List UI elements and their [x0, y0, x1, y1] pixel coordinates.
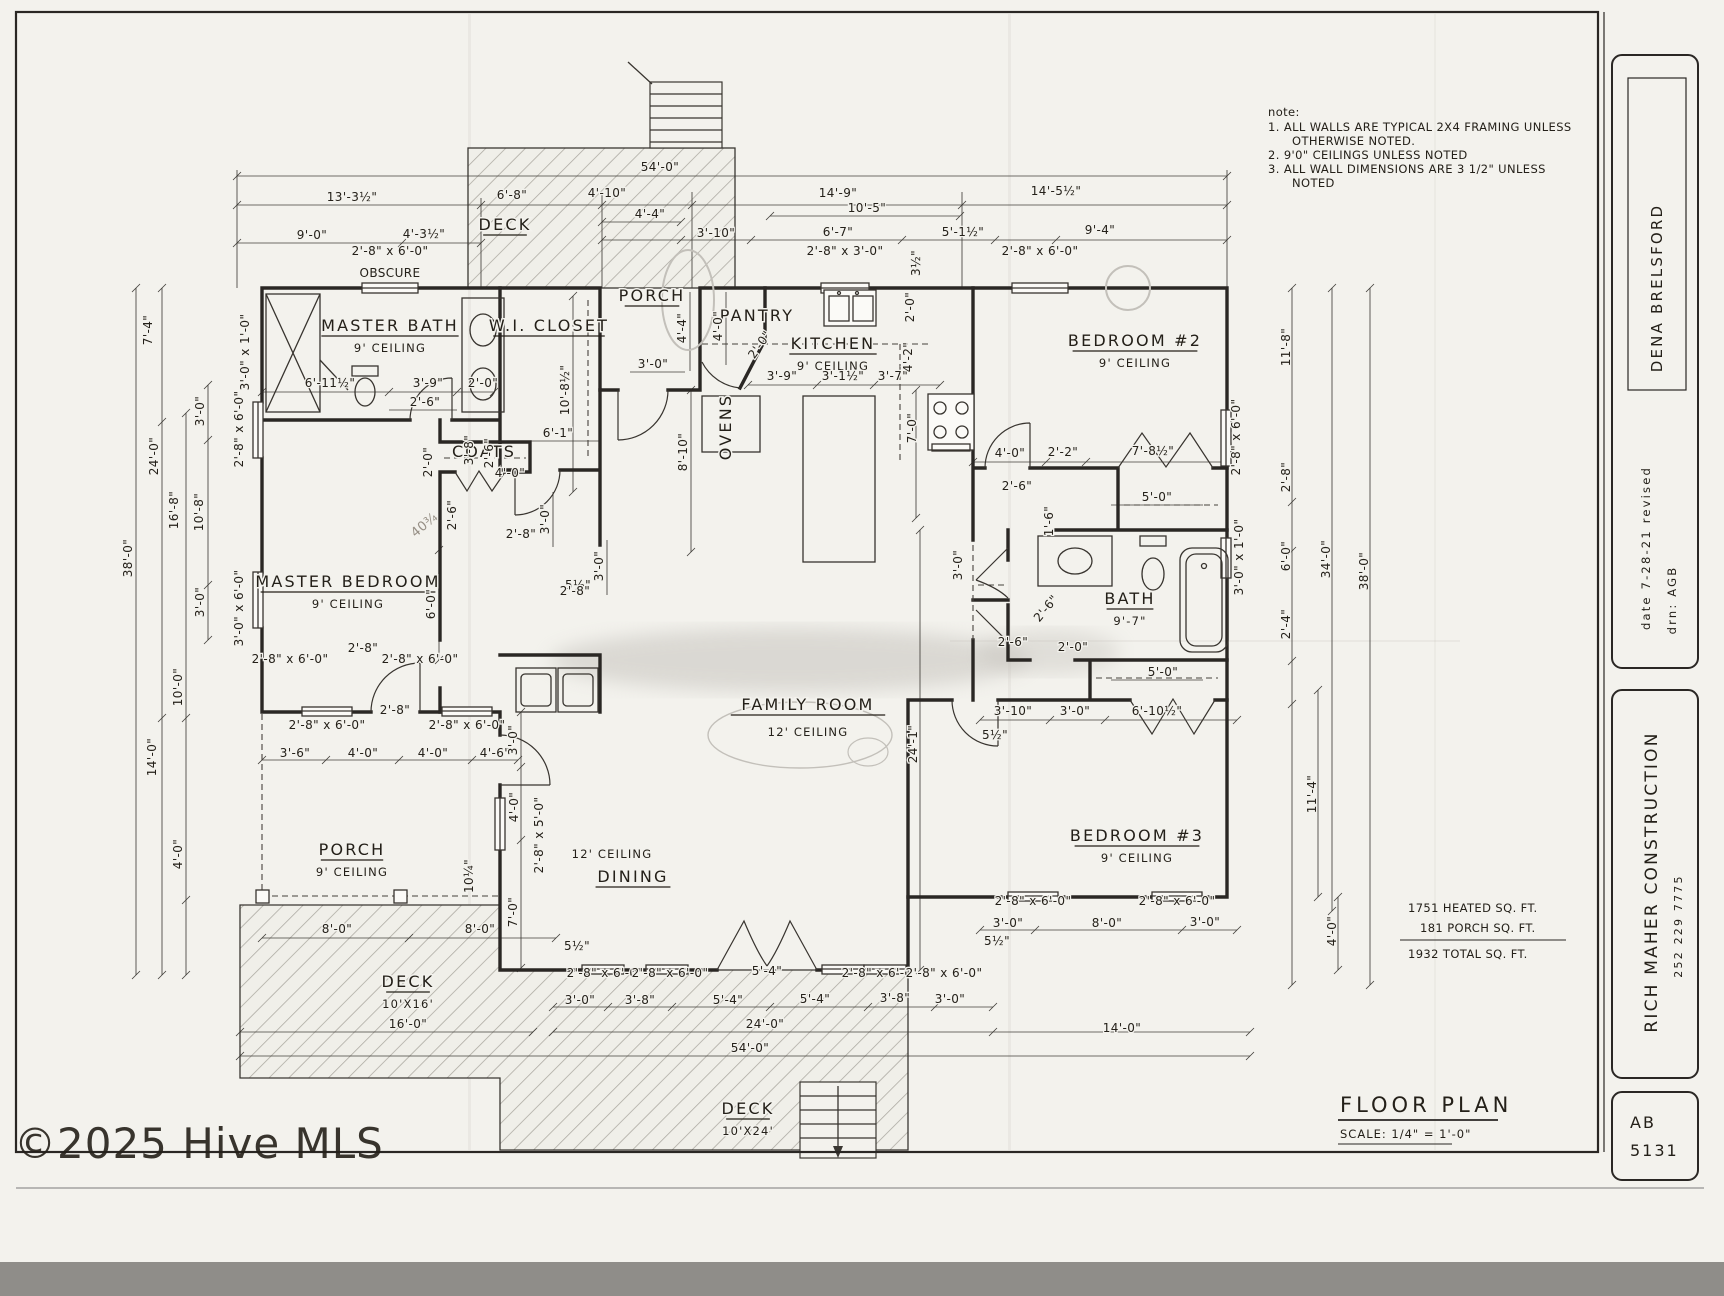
room-ceiling-note: 12' CEILING — [768, 725, 849, 739]
dimension-label: 4'-3½" — [403, 227, 445, 241]
dimension-label: 6'-0" — [424, 589, 438, 619]
scanned-floor-plan-sheet: DENA BRELSFORD date 7-28-21 revised drn:… — [0, 0, 1724, 1296]
dimension-label: 2'-8" x 6'-0" — [906, 966, 983, 980]
dimension-label: 2'-8" — [1279, 462, 1293, 492]
dimension-label: 2'-4" — [1279, 609, 1293, 639]
room-label: MASTER BATH — [321, 316, 459, 335]
room-ceiling-note: 9' CEILING — [1101, 851, 1173, 865]
dimension-label: 7'-0" — [506, 897, 520, 927]
dimension-label: 5½" — [564, 939, 590, 953]
room-label: BEDROOM #3 — [1070, 826, 1204, 845]
notes-heading: note: — [1268, 105, 1300, 119]
scanner-background — [0, 1262, 1724, 1296]
dimension-label: 2'-8" — [560, 584, 590, 598]
dimension-label: 14'-9" — [819, 186, 857, 200]
porch-area: 181 PORCH SQ. FT. — [1420, 921, 1536, 935]
bottom-stairs — [800, 1082, 876, 1158]
dimension-label: 4'-10" — [588, 186, 626, 200]
dimension-label: 2'-0" — [468, 376, 498, 390]
dimension-label: 4'-0" — [995, 446, 1025, 460]
room-label: KITCHEN — [791, 334, 876, 353]
room-ceiling-note: 10'X16' — [382, 997, 434, 1011]
dimension-label: 2'-8" — [506, 527, 536, 541]
note-line: NOTED — [1292, 176, 1335, 190]
sheet-scale: SCALE: 1/4" = 1'-0" — [1340, 1127, 1471, 1141]
dimension-label: 3'-0" — [193, 396, 207, 426]
company-name: RICH MAHER CONSTRUCTION — [1642, 731, 1662, 1032]
room-ceiling-note: 9' CEILING — [354, 341, 426, 355]
dimension-label: 9'-0" — [297, 228, 327, 242]
floor-plan-drawing: DENA BRELSFORD date 7-28-21 revised drn:… — [0, 0, 1724, 1296]
dimension-label: 10'-0" — [171, 668, 185, 706]
dimension-label: 34'-0" — [1319, 540, 1333, 578]
room-ceiling-note: 10'X24' — [722, 1124, 774, 1138]
dimension-label: 3'-1½" — [822, 369, 864, 383]
dimension-label: 3½" — [909, 250, 923, 276]
dimension-label: 12' CEILING — [572, 847, 653, 861]
dimension-label: 3'-0" x 6'-0" — [232, 570, 246, 647]
heated-area: 1751 HEATED SQ. FT. — [1408, 901, 1538, 915]
dimension-label: 24'-0" — [746, 1017, 784, 1031]
dimension-label: 2'-6" — [410, 395, 440, 409]
dimension-label: 54'-0" — [731, 1041, 769, 1055]
dimension-label: 2'-8" x 6'-0" — [352, 244, 429, 258]
dimension-label: 2'-8" x 3'-0" — [807, 244, 884, 258]
dimension-label: 2'-8" — [380, 703, 410, 717]
dimension-label: 2'-8" x 6'-0" — [1139, 894, 1216, 908]
dimension-label: 10'-8" — [192, 493, 206, 531]
room-label: DINING — [597, 867, 668, 886]
dimension-label: 2'-8" — [348, 641, 378, 655]
room-ceiling-note: 9' CEILING — [1099, 356, 1171, 370]
room-label: FAMILY ROOM — [741, 695, 874, 714]
room-label: PORCH — [319, 840, 386, 859]
dimension-label: 4'-0" — [418, 746, 448, 760]
dimension-label: 5'-1½" — [942, 225, 984, 239]
dimension-label: 8'-0" — [322, 922, 352, 936]
dimension-label: 8'-0" — [1092, 916, 1122, 930]
dimension-label: 10'-5" — [848, 201, 886, 215]
dimension-label: 3'-0" — [993, 916, 1023, 930]
sheet-number: 5131 — [1630, 1141, 1679, 1160]
dimension-label: 38'-0" — [121, 539, 135, 577]
dimension-label: 2'-2" — [1048, 445, 1078, 459]
dimension-label: 6'-11½" — [305, 376, 355, 390]
room-ceiling-note: 9' CEILING — [312, 597, 384, 611]
dimension-label: 2'-8" x 6'-0" — [289, 718, 366, 732]
dimension-label: 4'-0" — [1325, 916, 1339, 946]
date-line: date 7-28-21 revised — [1639, 466, 1653, 630]
kitchen-sink — [824, 290, 876, 326]
dimension-label: 10'-8½" — [558, 365, 572, 415]
dimension-label: 3'-8" — [625, 993, 655, 1007]
note-line: OTHERWISE NOTED. — [1292, 134, 1415, 148]
dimension-label: 24'-1" — [906, 725, 920, 763]
dimension-label: 3'-0" — [565, 993, 595, 1007]
dimension-label: 7'-0" — [905, 413, 919, 443]
dimension-label: 6'-0" — [1279, 541, 1293, 571]
room-label: DECK — [722, 1099, 775, 1118]
dimension-label: 10¼" — [462, 859, 476, 893]
dimension-label: 6'-10½" — [1132, 704, 1182, 718]
dimension-label: 8'-0" — [465, 922, 495, 936]
dimension-label: 4'-4" — [635, 207, 665, 221]
dimension-label: 2'-0" — [903, 292, 917, 322]
dimension-label: 4'-0" — [507, 792, 521, 822]
dimension-label: 2'-8" x 6'-0" — [232, 391, 246, 468]
dimension-label: 3'-9" — [767, 369, 797, 383]
dimension-label: 8'-10" — [676, 433, 690, 471]
dimension-label: 6'-8" — [497, 188, 527, 202]
dimension-label: 2'-8" x 6'-0" — [429, 718, 506, 732]
note-line: 2. 9'0" CEILINGS UNLESS NOTED — [1268, 148, 1468, 162]
dimension-label: 2'-8" x 6'-0" — [632, 966, 709, 980]
room-label: BEDROOM #2 — [1068, 331, 1202, 350]
mls-watermark: ©2025 Hive MLS — [14, 1119, 384, 1168]
dimension-label: 2'-6" — [998, 635, 1028, 649]
room-label: PORCH — [619, 286, 686, 305]
dimension-label: 2'-8" x 6'-0" — [995, 894, 1072, 908]
porch-post — [394, 890, 407, 903]
room-label: BATH — [1104, 589, 1155, 608]
dimension-label: 54'-0" — [641, 160, 679, 174]
dimension-label: 2'-0" — [1058, 640, 1088, 654]
dimension-label: 3'-0" — [538, 504, 552, 534]
dimension-label: 9'-4" — [1085, 223, 1115, 237]
sheet-title: FLOOR PLAN — [1340, 1093, 1512, 1117]
company-phone: 252 229 7775 — [1672, 874, 1685, 977]
dimension-label: 1'-6" — [1042, 506, 1056, 536]
porch-post — [256, 890, 269, 903]
dimension-label: 3'-0" — [1060, 704, 1090, 718]
dimension-label: 3'-0" — [506, 725, 520, 755]
dimension-label: 2'-8" x 6'-0" — [252, 652, 329, 666]
dimension-label: 3'-10" — [697, 226, 735, 240]
dimension-label: 4'-2" — [901, 342, 915, 372]
dimension-label: 3'-0" — [592, 551, 606, 581]
dimension-label: 38'-0" — [1357, 552, 1371, 590]
dimension-label: 3'-0" x 1'-0" — [238, 314, 252, 391]
dimension-label: 7'-8½" — [1132, 444, 1174, 458]
note-line: 3. ALL WALL DIMENSIONS ARE 3 1/2" UNLESS — [1268, 162, 1546, 176]
dimension-label: 3'-10" — [994, 704, 1032, 718]
dimension-label: 14'-5½" — [1031, 184, 1081, 198]
dimension-label: 4'-0" — [171, 839, 185, 869]
dimension-label: 5'-0" — [1148, 665, 1178, 679]
sheet-prefix: AB — [1630, 1113, 1656, 1132]
dimension-label: 3'-0" x 1'-0" — [1232, 519, 1246, 596]
room-label: PANTRY — [720, 306, 794, 325]
dimension-label: 2'-8" x 6'-0" — [1229, 399, 1243, 476]
range — [928, 394, 974, 451]
dimension-label: 4'-4" — [675, 313, 689, 343]
dimension-label: 6'-7" — [823, 225, 853, 239]
dimension-label: 5'-4" — [713, 993, 743, 1007]
dimension-label: 4'-0" — [495, 466, 525, 480]
dimension-label: 3'-0" — [193, 587, 207, 617]
dimension-label: OBSCURE — [360, 266, 421, 280]
dimension-label: 3'-0" — [1190, 915, 1220, 929]
dimension-label: 5'-4" — [800, 992, 830, 1006]
dimension-label: 13'-3½" — [327, 190, 377, 204]
dimension-label: 16'-0" — [389, 1017, 427, 1031]
dimension-label: 5'-4" — [752, 964, 782, 978]
dimension-label: 4'-0" — [711, 311, 725, 341]
dimension-label: 14'-0" — [145, 738, 159, 776]
dimension-label: 2'-6" — [482, 438, 496, 468]
room-ceiling-note: 9'-7" — [1113, 614, 1146, 628]
dimension-label: 3'-6" — [280, 746, 310, 760]
note-line: 1. ALL WALLS ARE TYPICAL 2X4 FRAMING UNL… — [1268, 120, 1572, 134]
dimension-label: 2'-8" x 6'-0" — [382, 652, 459, 666]
total-area: 1932 TOTAL SQ. FT. — [1408, 947, 1528, 961]
dimension-label: 3'-0" — [638, 357, 668, 371]
dimension-label: 3'-8" — [462, 435, 476, 465]
dimension-label: 7'-4" — [141, 315, 155, 345]
dimension-label: 2'-8" x 6'-0" — [1002, 244, 1079, 258]
room-label: DECK — [479, 215, 532, 234]
room-label: DECK — [382, 972, 435, 991]
dimension-label: 2'-6" — [445, 500, 459, 530]
dimension-label: 24'-0" — [147, 437, 161, 475]
dimension-label: 2'-0" — [421, 447, 435, 477]
dimension-label: 2'-8" x 5'-0" — [532, 797, 546, 874]
dimension-label: 2'-6" — [1002, 479, 1032, 493]
dimension-label: 5'-0" — [1142, 490, 1172, 504]
dimension-label: 11'-4" — [1305, 775, 1319, 813]
client-name: DENA BRELSFORD — [1648, 204, 1666, 373]
dimension-label: 3'-0" — [935, 992, 965, 1006]
dimension-label: 5½" — [982, 728, 1008, 742]
drawn-by-line: drn: AGB — [1665, 566, 1679, 635]
dimension-label: 11'-8" — [1279, 328, 1293, 366]
dimension-label: 3'-8" — [880, 991, 910, 1005]
dimension-label: 3'-0" — [951, 550, 965, 580]
dimension-label: 16'-8" — [167, 491, 181, 529]
room-label: MASTER BEDROOM — [255, 572, 440, 591]
room-ceiling-note: 9' CEILING — [316, 865, 388, 879]
room-label: W.I. CLOSET — [489, 316, 609, 335]
dimension-label: 5½" — [984, 934, 1010, 948]
room-label: OVENS — [716, 394, 735, 461]
dimension-label: 14'-0" — [1103, 1021, 1141, 1035]
dimension-label: 6'-1" — [543, 426, 573, 440]
dimension-label: 3'-9" — [413, 376, 443, 390]
dimension-label: 4'-0" — [348, 746, 378, 760]
